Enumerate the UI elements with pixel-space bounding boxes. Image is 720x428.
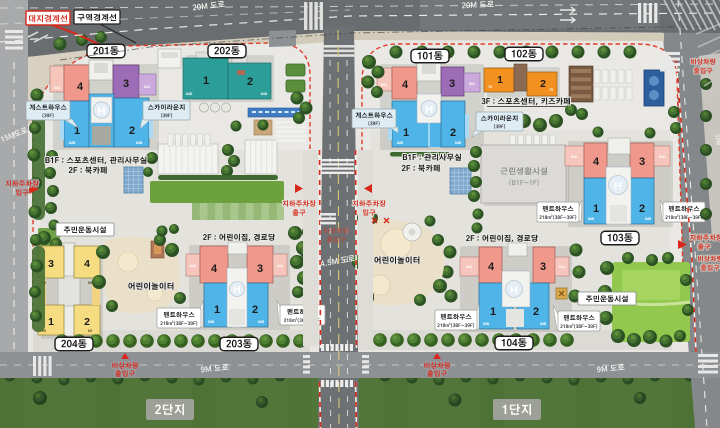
svg-text:4: 4 xyxy=(77,81,84,93)
svg-text:H: H xyxy=(233,285,240,296)
svg-text:84B: 84B xyxy=(136,141,143,145)
svg-text:H: H xyxy=(425,104,433,116)
svg-text:84C: 84C xyxy=(144,85,151,89)
svg-text:84B: 84B xyxy=(258,320,265,324)
svg-text:84A: 84A xyxy=(190,264,197,268)
svg-text:4: 4 xyxy=(593,156,600,168)
svg-text:2: 2 xyxy=(129,125,135,137)
svg-text:69: 69 xyxy=(88,329,92,333)
svg-text:3: 3 xyxy=(123,78,129,90)
svg-text:2: 2 xyxy=(252,304,258,316)
svg-text:3: 3 xyxy=(48,258,54,270)
svg-text:1: 1 xyxy=(497,74,503,86)
svg-text:2: 2 xyxy=(533,306,539,318)
svg-text:3: 3 xyxy=(257,263,263,275)
svg-text:84C: 84C xyxy=(469,82,476,86)
svg-text:3: 3 xyxy=(449,78,455,90)
svg-text:H: H xyxy=(614,181,622,193)
svg-text:84A: 84A xyxy=(381,83,388,87)
svg-text:84A: 84A xyxy=(54,86,61,90)
svg-text:3: 3 xyxy=(639,156,645,168)
svg-text:79: 79 xyxy=(549,88,553,92)
svg-text:84A: 84A xyxy=(659,155,666,159)
svg-text:1: 1 xyxy=(403,127,409,139)
svg-text:4: 4 xyxy=(402,79,409,91)
svg-text:84B: 84B xyxy=(397,141,404,145)
svg-text:1: 1 xyxy=(214,304,220,316)
svg-text:84B: 84B xyxy=(588,217,595,221)
svg-text:1: 1 xyxy=(48,316,54,328)
svg-text:84A: 84A xyxy=(466,265,473,269)
svg-text:84B: 84B xyxy=(540,322,547,326)
svg-text:H: H xyxy=(510,285,518,297)
svg-text:84A: 84A xyxy=(277,264,284,268)
svg-text:2: 2 xyxy=(247,76,253,88)
svg-text:4: 4 xyxy=(211,263,218,275)
svg-text:69: 69 xyxy=(88,281,92,285)
svg-text:84D: 84D xyxy=(261,92,268,96)
svg-text:1: 1 xyxy=(593,203,599,215)
svg-text:2: 2 xyxy=(450,127,456,139)
svg-text:4: 4 xyxy=(84,258,90,270)
svg-text:H: H xyxy=(98,106,106,118)
svg-text:84B: 84B xyxy=(645,217,652,221)
svg-text:84D: 84D xyxy=(186,92,193,96)
svg-text:84A: 84A xyxy=(571,155,578,159)
svg-text:1: 1 xyxy=(490,306,496,318)
svg-text:84B: 84B xyxy=(208,320,215,324)
svg-text:84A: 84A xyxy=(559,265,566,269)
svg-text:4: 4 xyxy=(488,261,495,273)
svg-text:2: 2 xyxy=(540,78,546,90)
svg-text:84B: 84B xyxy=(483,322,490,326)
svg-text:84B: 84B xyxy=(455,141,462,145)
svg-text:1: 1 xyxy=(203,75,209,87)
svg-text:2: 2 xyxy=(639,203,645,215)
svg-text:79: 79 xyxy=(488,85,492,89)
svg-text:84B: 84B xyxy=(69,141,76,145)
svg-text:3: 3 xyxy=(540,261,546,273)
svg-text:2: 2 xyxy=(84,316,90,328)
